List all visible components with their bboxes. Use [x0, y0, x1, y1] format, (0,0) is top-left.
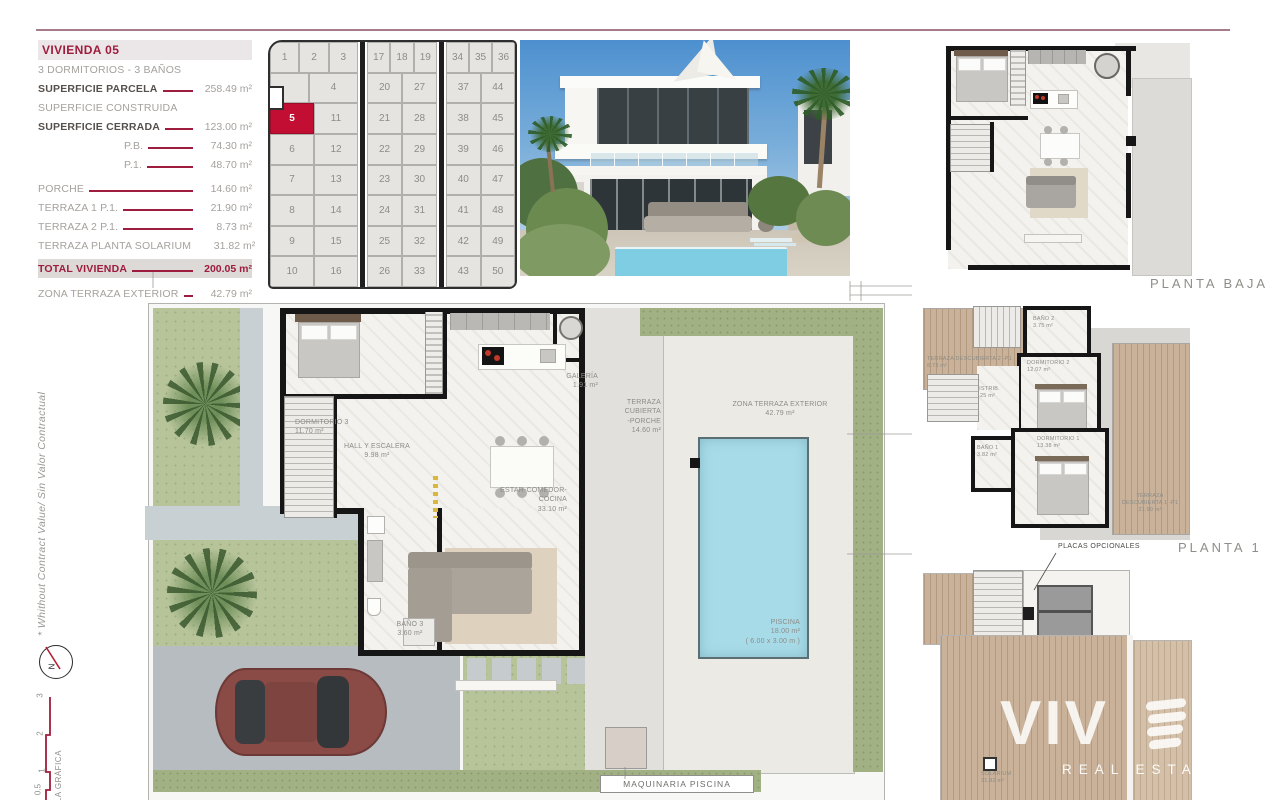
plot-cell-25: 25 [367, 226, 402, 257]
plot-cell-6: 6 [270, 134, 314, 165]
plot-cell-26: 26 [367, 256, 402, 287]
pillow [1063, 391, 1085, 403]
pb-terrace [1132, 78, 1192, 276]
room-name: DORMITORIO 2 [1027, 360, 1070, 367]
room-label-dormitorio2: DORMITORIO 2 12.07 m² [1027, 360, 1070, 374]
room-name: ZONA TERRAZA EXTERIOR [718, 400, 842, 409]
grid-row: 41 48 [446, 195, 515, 226]
grid-row: 21 28 [367, 103, 437, 134]
graphic-scale-bar [46, 697, 50, 800]
road-divider [437, 42, 446, 287]
compass [39, 645, 73, 679]
leader-line [123, 208, 193, 211]
plot-cell-42: 42 [446, 226, 481, 257]
spec-value: 48.70 m² [198, 159, 252, 171]
yellow-door-marker [433, 476, 438, 518]
chair-icon [495, 436, 505, 446]
car-rear-glass [235, 680, 265, 744]
plot-cell-38: 38 [446, 103, 481, 134]
room-area: 21.90 m² [1112, 507, 1188, 514]
spec-panel: VIVIENDA 05 3 DORMITORIOS - 3 BAÑOS SUPE… [38, 40, 252, 303]
pool-water [615, 247, 787, 276]
grid-row: 40 47 [446, 165, 515, 196]
room-label-bano1: BAÑO 1 3.82 m² [977, 445, 998, 459]
dining-table [490, 446, 554, 488]
planta-1-plan: TERRAZA DESCUBIERTA 2 -P1 8.73 m² BAÑO 2… [915, 298, 1195, 546]
grid-row: 10 16 [270, 256, 358, 287]
plot-cell-46: 46 [481, 134, 516, 165]
wall-segment [1126, 46, 1131, 96]
palm-tree-icon [167, 548, 257, 638]
spec-label: TERRAZA 1 P.1. [38, 202, 118, 214]
room-label-porche: TERRAZA CUBIERTA -PORCHE 14.60 m² [593, 398, 661, 436]
plot-cell-22: 22 [367, 134, 402, 165]
plot-cell-24: 24 [367, 195, 402, 226]
leader-line [89, 189, 193, 192]
room-name: DORMITORIO 1 [1037, 436, 1080, 443]
palm-crown-icon [528, 116, 572, 152]
scale-title: ESCALA GRÁFICA [54, 726, 66, 800]
plot-cell-49: 49 [481, 226, 516, 257]
plot-cell-18: 18 [390, 42, 413, 73]
spec-label: ZONA TERRAZA EXTERIOR [38, 288, 179, 300]
spec-label: TOTAL VIVIENDA [38, 263, 127, 275]
pool-steps [750, 238, 796, 242]
room-area: 14.60 m² [593, 426, 661, 435]
stairs [973, 306, 1021, 348]
grid-row: 26 33 [367, 256, 437, 287]
plot-cell-47: 47 [481, 165, 516, 196]
spec-label: P.B. [124, 140, 143, 152]
plot-cell-16: 16 [314, 256, 358, 287]
hedge [640, 308, 853, 336]
planta-1-label: PLANTA 1 [1178, 540, 1262, 555]
chair-icon [1060, 158, 1068, 166]
room-area: 12.07 m² [1027, 367, 1070, 374]
site-block-c: 34 35 36 37 44 38 45 39 46 40 47 41 [446, 42, 515, 287]
plot-cell-37: 37 [446, 73, 481, 104]
plot-cell-44: 44 [481, 73, 516, 104]
main-floor-plan: MAQUINARIA PISCINA DORMITORIO 3 11.70 m²… [145, 300, 895, 800]
grid-row: 24 31 [367, 195, 437, 226]
grid-row: 17 18 19 [367, 42, 437, 73]
grid-row: 43 50 [446, 256, 515, 287]
room-name2: DESCUBIERTA 1 -P1 [1112, 500, 1188, 507]
plot-cell-10: 10 [270, 256, 314, 287]
pillar [690, 458, 700, 468]
grid-row: 42 49 [446, 226, 515, 257]
burner-icon [494, 355, 500, 361]
grid-row: 23 30 [367, 165, 437, 196]
plot-cell-27: 27 [402, 73, 437, 104]
wall-segment [990, 122, 994, 172]
burner-icon [485, 350, 491, 356]
room-name: TERRAZA [1112, 493, 1188, 500]
vive-logo: VIV [1000, 688, 1109, 759]
plot-cell-20: 20 [367, 73, 402, 104]
leader-line [184, 294, 193, 297]
compass-n-label: N [47, 664, 56, 670]
room-area: 1.91 m² [550, 381, 598, 390]
wardrobe [1010, 50, 1026, 106]
room-label-piscina: PISCINA 18.00 m² ( 6.00 x 3.00 m ) [710, 618, 800, 646]
plot-cell-28: 28 [402, 103, 437, 134]
plot-cell-8: 8 [270, 195, 314, 226]
leader-line [132, 269, 193, 272]
grid-row: 34 35 36 [446, 42, 515, 73]
grid-row: 39 46 [446, 134, 515, 165]
plot-cell-14: 14 [314, 195, 358, 226]
plot-cell-29: 29 [402, 134, 437, 165]
grid-row: 7 13 [270, 165, 358, 196]
maquinaria-box [605, 727, 647, 769]
pillow [1039, 463, 1062, 475]
room-area: 3.60 m² [385, 629, 435, 638]
grid-row: 6 12 [270, 134, 358, 165]
disclaimer-text: * Whithout Contract Value/ Sin Valor Con… [36, 380, 52, 636]
palm-tree-icon [163, 362, 247, 446]
burner-icon [1035, 95, 1039, 99]
leader-line [123, 227, 193, 230]
plot-cell-1: 1 [270, 42, 299, 73]
spec-subtitle: 3 DORMITORIOS - 3 BAÑOS [38, 64, 181, 76]
room-label-bano2: BAÑO 2 3.75 m² [1033, 316, 1054, 330]
scale-tick-1: 1 [38, 764, 47, 778]
mid-slab [555, 166, 767, 175]
room-name: ESTAR-COMEDOR-COCINA [475, 486, 567, 505]
washer-icon [1094, 53, 1120, 79]
site-plan-grid: 1 2 3 4 5 11 6 12 7 13 8 14 [268, 40, 517, 289]
spec-value: 42.79 m² [198, 288, 252, 300]
spec-row-cerrada: SUPERFICIE CERRADA 123.00 m² [38, 117, 252, 136]
spec-subtitle-row: 3 DORMITORIOS - 3 BAÑOS [38, 60, 252, 79]
grid-row: 22 29 [367, 134, 437, 165]
site-block-b: 17 18 19 20 27 21 28 22 29 23 30 24 [367, 42, 437, 287]
spec-row-solarium: TERRAZA PLANTA SOLARIUM 31.82 m² [38, 236, 252, 255]
room-name: PISCINA [710, 618, 800, 627]
plot-cell-32: 32 [402, 226, 437, 257]
spec-row-terraza2: TERRAZA 2 P.1. 8.73 m² [38, 217, 252, 236]
scale-tick-3: 3 [36, 689, 45, 703]
stepping-pad [567, 658, 586, 684]
plot-cell-11: 11 [314, 103, 358, 134]
plot-cell-23: 23 [367, 165, 402, 196]
wall-segment [1086, 46, 1122, 51]
stairs [927, 374, 979, 422]
wall-segment [358, 650, 585, 656]
room-label-hall: HALL Y ESCALERA 9.98 m² [327, 442, 427, 461]
plot-cell-21: 21 [367, 103, 402, 134]
room-dims: ( 6.00 x 3.00 m ) [710, 637, 800, 646]
grid-notch [268, 86, 284, 110]
room-label-galeria: GALERÍA 1.91 m² [550, 372, 598, 391]
plot-cell-36: 36 [492, 42, 515, 73]
plot-cell-9: 9 [270, 226, 314, 257]
planta-baja-plan [910, 38, 1195, 293]
grid-row: 38 45 [446, 103, 515, 134]
room-area: 11.70 m² [295, 427, 349, 436]
scale-tick-05: 0.5 [34, 781, 43, 799]
plot-cell-43: 43 [446, 256, 481, 287]
leader-line [165, 127, 193, 130]
grid-row: 9 15 [270, 226, 358, 257]
scale-tick-2: 2 [36, 727, 45, 741]
spec-value: 14.60 m² [198, 183, 252, 195]
dining-table [1040, 133, 1080, 159]
plot-cell-45: 45 [481, 103, 516, 134]
plot-cell-19: 19 [414, 42, 437, 73]
pillow [1064, 463, 1087, 475]
spec-label: PORCHE [38, 183, 84, 195]
room-area: 9.98 m² [327, 451, 427, 460]
spec-row-construida: SUPERFICIE CONSTRUIDA [38, 98, 252, 117]
villa-photo [520, 40, 850, 276]
plot-cell-7: 7 [270, 165, 314, 196]
plot-cell-17: 17 [367, 42, 390, 73]
room-name: GALERÍA [550, 372, 598, 381]
plot-cell-40: 40 [446, 165, 481, 196]
pillar [1126, 136, 1136, 146]
wall-segment [358, 508, 364, 656]
room-label-bano3: BAÑO 3 3.60 m² [385, 620, 435, 639]
plot-cell-48: 48 [481, 195, 516, 226]
chair-icon [539, 436, 549, 446]
spec-value: 74.30 m² [198, 140, 252, 152]
plan-sheet: VIVIENDA 05 3 DORMITORIOS - 3 BAÑOS SUPE… [0, 0, 1280, 800]
room-area: 31.82 m² [981, 778, 1011, 785]
room-name2: -PORCHE [593, 417, 661, 426]
sol-black-box [1023, 607, 1034, 620]
room-name: BAÑO 1 [977, 445, 998, 452]
spec-label: TERRAZA 2 P.1. [38, 221, 118, 233]
plot-cell-15: 15 [314, 226, 358, 257]
tv-bench [1024, 234, 1082, 243]
placas-note: PLACAS OPCIONALES [1058, 543, 1140, 550]
plot-cell-41: 41 [446, 195, 481, 226]
room-name: HALL Y ESCALERA [327, 442, 427, 451]
sink [540, 349, 556, 363]
bush [796, 190, 850, 246]
chair-icon [1044, 158, 1052, 166]
room-label-dormitorio3: DORMITORIO 3 11.70 m² [295, 418, 349, 437]
stairs [950, 124, 992, 172]
plot-cell-2: 2 [299, 42, 328, 73]
pillow [983, 58, 1006, 71]
kitchen-cabinets [1028, 50, 1086, 64]
wall-segment [946, 116, 1028, 120]
room-label-solarium: SOLARIUM 31.82 m² [981, 771, 1011, 785]
pillow [330, 325, 357, 340]
pillow [301, 325, 328, 340]
room-area: 3.82 m² [977, 452, 998, 459]
grid-row: 37 44 [446, 73, 515, 104]
plot-cell-35: 35 [469, 42, 492, 73]
bed-headboard [295, 314, 361, 322]
room-area: 42.79 m² [718, 409, 842, 418]
stairs [973, 570, 1023, 644]
maquinaria-label-box: MAQUINARIA PISCINA [600, 775, 754, 793]
washer-icon [559, 316, 583, 340]
road-divider [358, 42, 367, 287]
spec-label: P.1. [124, 159, 142, 171]
spec-row-total: TOTAL VIVIENDA 200.05 m² [38, 259, 252, 278]
spec-label: SUPERFICIE CERRADA [38, 121, 160, 133]
leader-line [147, 165, 193, 168]
spec-row-p1: P.1. 48.70 m² [38, 155, 252, 174]
planta-baja-label: PLANTA BAJA [1150, 276, 1268, 291]
car-windshield [317, 676, 349, 748]
spec-value: 31.82 m² [201, 240, 255, 252]
wall-segment [1126, 153, 1131, 218]
room-area: 13.38 m² [1037, 443, 1080, 450]
grid-row: 1 2 3 [270, 42, 358, 73]
spec-label: SUPERFICIE PARCELA [38, 83, 158, 95]
pillow [958, 58, 981, 71]
room-name: TERRAZA DESCUBIERTA 2 -P1 [927, 356, 1031, 363]
grid-row: 25 32 [367, 226, 437, 257]
spec-row-porche: PORCHE 14.60 m² [38, 179, 252, 198]
chair-icon [517, 436, 527, 446]
spec-value: 200.05 m² [198, 263, 252, 275]
room-name: BAÑO 3 [385, 620, 435, 629]
plot-cell-39: 39 [446, 134, 481, 165]
room-label-terraza1: TERRAZA DESCUBIERTA 1 -P1 21.90 m² [1112, 493, 1188, 514]
room-area: 18.00 m² [710, 627, 800, 636]
spec-value: 21.90 m² [198, 202, 252, 214]
spec-row-pb: P.B. 74.30 m² [38, 136, 252, 155]
kitchen-cabinets [450, 313, 550, 330]
burner-icon [1041, 96, 1045, 100]
bath-fixture [367, 516, 385, 534]
room-label-dormitorio1: DORMITORIO 1 13.38 m² [1037, 436, 1080, 450]
palm-crown-icon [792, 68, 850, 120]
maquinaria-label: MAQUINARIA PISCINA [623, 779, 731, 789]
chair-icon [1060, 126, 1068, 134]
plot-cell-4: 4 [309, 73, 358, 104]
wardrobe [425, 312, 443, 394]
plot-cell-13: 13 [314, 165, 358, 196]
site-block-a: 1 2 3 4 5 11 6 12 7 13 8 14 [270, 42, 358, 287]
vive-logo-tagline: REAL ESTAT [1062, 762, 1212, 777]
outdoor-sofa-seat [644, 216, 752, 232]
spec-row-parcela: SUPERFICIE PARCELA 258.49 m² [38, 79, 252, 98]
spec-label: TERRAZA PLANTA SOLARIUM [38, 240, 191, 252]
hedge [853, 308, 883, 772]
top-rule [36, 29, 1230, 31]
wall-segment [968, 265, 1130, 270]
leader-line [148, 146, 193, 149]
sofa-back [1026, 176, 1076, 185]
plot-cell-33: 33 [402, 256, 437, 287]
room-name: SOLARIUM [981, 771, 1011, 778]
plot-cell-31: 31 [402, 195, 437, 226]
upper-floor-glass [597, 88, 749, 146]
bath-counter [367, 540, 383, 582]
sink [1058, 94, 1069, 104]
plot-cell-50: 50 [481, 256, 516, 287]
spec-value: 123.00 m² [198, 121, 252, 133]
wall-segment [443, 308, 447, 398]
room-name: BAÑO 2 [1033, 316, 1054, 323]
room-area: 33.10 m² [475, 505, 567, 514]
plot-cell-12: 12 [314, 134, 358, 165]
room-name: TERRAZA CUBIERTA [593, 398, 661, 417]
pool-steps [754, 243, 796, 246]
tv-bench [455, 680, 557, 691]
spec-title: VIVIENDA 05 [38, 40, 252, 60]
grid-row: 8 14 [270, 195, 358, 226]
car-roof [265, 682, 317, 742]
sol-marker-icon [983, 757, 997, 771]
room-area: 3.75 m² [1033, 323, 1054, 330]
pillow [1039, 391, 1061, 403]
room-name: DORMITORIO 3 [295, 418, 349, 427]
grid-row: 20 27 [367, 73, 437, 104]
room-label-estar: ESTAR-COMEDOR-COCINA 33.10 m² [475, 486, 567, 514]
spec-value: 8.73 m² [198, 221, 252, 233]
spec-value: 258.49 m² [198, 83, 252, 95]
chair-icon [1044, 126, 1052, 134]
room-label-zona-exterior: ZONA TERRAZA EXTERIOR 42.79 m² [718, 400, 842, 419]
plot-cell-30: 30 [402, 165, 437, 196]
plot-cell-34: 34 [446, 42, 469, 73]
leader-line [163, 89, 194, 92]
plot-cell-3: 3 [329, 42, 358, 73]
spec-row-terraza1: TERRAZA 1 P.1. 21.90 m² [38, 198, 252, 217]
toilet-icon [367, 598, 381, 616]
spec-label: SUPERFICIE CONSTRUIDA [38, 102, 178, 114]
